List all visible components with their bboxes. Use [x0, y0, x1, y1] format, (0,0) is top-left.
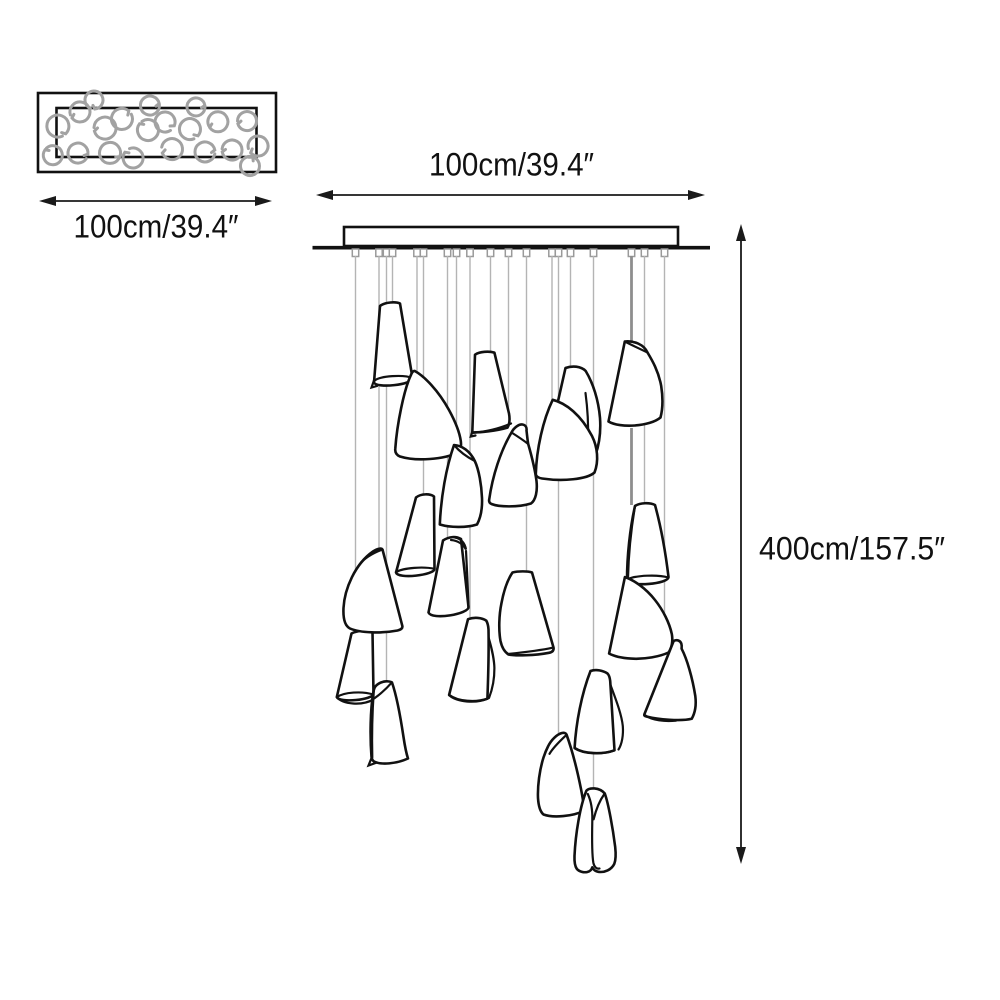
- svg-text:100cm/39.4″: 100cm/39.4″: [74, 209, 239, 245]
- svg-text:400cm/157.5″: 400cm/157.5″: [759, 531, 945, 567]
- svg-text:100cm/39.4″: 100cm/39.4″: [429, 147, 594, 183]
